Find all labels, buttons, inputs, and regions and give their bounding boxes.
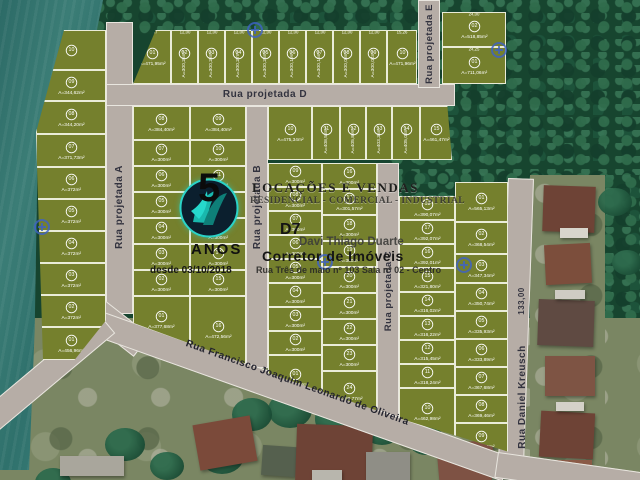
lot-area: A=367,68m² — [468, 386, 494, 391]
watermark-subline: RESIDENCIAL - COMERCIAL - INDUSTRIAL — [250, 196, 465, 206]
lot-number: 16 — [344, 167, 355, 178]
lot: 17A=392,07m² — [399, 220, 455, 244]
lot-number: 02 — [468, 20, 479, 31]
lot-number: 03 — [476, 259, 487, 270]
anniversary-number: 5 — [198, 168, 220, 208]
lot-area: A=384,40m² — [148, 128, 174, 133]
lot: 07A=371,73m² — [36, 134, 106, 167]
lot-dimension: 12,00 — [287, 31, 298, 35]
lot: 09A=384,40m² — [190, 106, 246, 140]
lot-area: A=300m² — [285, 300, 305, 305]
lot: 08A=384,40m² — [133, 106, 190, 140]
tree-canopy — [612, 250, 640, 275]
lot: 12A=315,45m² — [399, 340, 455, 364]
lot-area: A=372m² — [61, 252, 81, 257]
lot: 13,8701A=471,95m² — [133, 30, 171, 84]
street-label-rua-daniel-kreusch: Rua Daniel Kreusch — [514, 337, 530, 457]
lot-number: 22 — [344, 323, 355, 334]
lot-number: 07 — [476, 372, 487, 383]
lot: 12,0006A=300,19m² — [279, 30, 306, 84]
lot-area: A=300m² — [152, 288, 172, 293]
lot-area: A=300m² — [152, 236, 172, 241]
lot: 12,0007A=300,15m² — [306, 30, 333, 84]
house-roof — [60, 456, 124, 476]
lot-area: A=300m² — [285, 348, 305, 353]
lot-number: 01 — [156, 311, 167, 322]
lot-area: A=471,95m² — [139, 62, 165, 67]
lot-number: 05 — [65, 206, 76, 217]
lot-number: 07 — [65, 141, 76, 152]
lot: 02A=372m² — [36, 295, 106, 327]
lot: 12,0009A=300,04m² — [360, 30, 387, 84]
lot-dimension: 12,00 — [206, 31, 217, 35]
lot-dimension: 12,00 — [233, 31, 244, 35]
lot-number: 02 — [289, 334, 300, 345]
lot: 12A=405,89m² — [340, 106, 366, 160]
lot-number: 04 — [65, 238, 76, 249]
lot-number: 08 — [65, 108, 76, 119]
lot-number: 01 — [146, 48, 157, 59]
lot-area: A=300m² — [340, 363, 360, 368]
subdivision-map: 1009A=344,62m²08A=344,20m²07A=371,73m²06… — [0, 0, 640, 480]
lot-area: A=300,27m² — [236, 51, 241, 78]
since-date-label: desde 03/10/2018 — [150, 265, 232, 276]
lot-number: 09 — [289, 166, 300, 177]
lot-area: A=335,93m² — [468, 330, 494, 335]
lot-number: 04 — [476, 288, 487, 299]
lot-number: 10 — [212, 144, 223, 155]
lot-area: A=300,04m² — [371, 51, 376, 78]
lot-number: 10 — [284, 124, 295, 135]
lot-area: A=384,40m² — [205, 128, 231, 133]
survey-marker-icon — [34, 219, 50, 235]
house-roof — [545, 356, 595, 396]
lot: 13A=403,36m² — [366, 106, 392, 160]
street-label-rua-projetada-a: Rua projetada A — [111, 147, 127, 267]
lot-number: 04 — [156, 222, 167, 233]
lot-number: 16 — [212, 321, 223, 332]
block-bc-top-row: 10A=475,34m²11A=408,53m²12A=405,89m²13A=… — [268, 106, 452, 160]
lot-area: A=316,22m² — [414, 333, 440, 338]
lot-area: A=371,73m² — [58, 155, 84, 160]
house-roof — [544, 243, 592, 285]
lot-number: 08 — [156, 114, 167, 125]
lot-number: 03 — [156, 248, 167, 259]
lot-number: 05 — [156, 196, 167, 207]
lot: 11A=408,53m² — [312, 106, 340, 160]
lot-number: 08 — [476, 400, 487, 411]
lot: 07A=367,68m² — [455, 367, 508, 395]
lot-dimension: 12,00 — [314, 31, 325, 35]
lot-dimension: 12,00 — [179, 31, 190, 35]
lot-area: A=471,96m² — [389, 62, 415, 67]
lot: 05A=335,93m² — [455, 311, 508, 339]
lot: 03A=372m² — [36, 263, 106, 295]
lot-number: 01 — [65, 334, 76, 345]
lot-area: A=392,07m² — [414, 237, 440, 242]
lot-area: A=300m² — [340, 311, 360, 316]
lot-number: 10 — [396, 48, 407, 59]
lot-area: A=318,24m² — [414, 381, 440, 386]
lot-area: A=372m² — [61, 284, 81, 289]
lot: 12,0003A=300,28m² — [198, 30, 225, 84]
lot: 11A=318,24m² — [399, 364, 455, 388]
lot: 02A=368,54m² — [455, 222, 508, 254]
lot-number: 13 — [421, 319, 432, 330]
lot: 21A=300m² — [322, 293, 377, 319]
lot: 04A=350,74m² — [455, 283, 508, 311]
lot-area: A=347,34m² — [468, 273, 494, 278]
agency-address: Rua Três de maio nº 103 Sala nº 02 - Cen… — [256, 265, 441, 275]
lot-area: A=300m² — [152, 210, 172, 215]
lot: 06A=333,89m² — [455, 339, 508, 367]
house-roof — [560, 228, 588, 238]
lot-area: A=300,19m² — [290, 51, 295, 78]
lot: 15A=461,47m² — [420, 106, 452, 160]
lot: 04A=372m² — [36, 231, 106, 263]
lot: 10A=475,34m² — [268, 106, 312, 160]
survey-marker-icon — [456, 257, 472, 273]
lot: 04A=300m² — [268, 283, 322, 307]
tree-canopy — [598, 188, 632, 216]
lot-number: 21 — [344, 297, 355, 308]
lot-area: A=344,62m² — [58, 90, 84, 95]
lot-area: A=369,46m² — [468, 414, 494, 419]
agent-name: Davi Thiago Duarte — [299, 236, 404, 248]
lot-area: A=372m² — [61, 316, 81, 321]
lot-area: A=405,03m² — [404, 127, 409, 154]
lot-area: A=316,02m² — [414, 309, 440, 314]
lot-dimension: 15,26 — [397, 31, 408, 35]
lot-area: A=475,34m² — [277, 138, 303, 143]
lot-number: 16 — [421, 247, 432, 258]
lot-number: 12 — [421, 343, 432, 354]
lot-number: 10 — [421, 403, 432, 414]
lot-area: A=300,26m² — [182, 51, 187, 78]
lot-area: A=408,53m² — [324, 127, 329, 154]
lot-area: A=333,89m² — [468, 358, 494, 363]
lot: 12,0008A=300,08m² — [333, 30, 360, 84]
street-dimension-133: 133,00 — [513, 279, 529, 323]
lot-dimension: 12,00 — [368, 31, 379, 35]
lot-dimension: 24,00 — [469, 13, 480, 17]
lot-number: 09 — [65, 76, 76, 87]
lot-area: A=518,85m² — [461, 34, 487, 39]
lot-area: A=711,06m² — [461, 70, 487, 75]
lot-area: A=315,45m² — [414, 357, 440, 362]
lot-number: 06 — [476, 344, 487, 355]
lot: 14A=405,03m² — [392, 106, 420, 160]
lot-area: A=350,74m² — [468, 302, 494, 307]
lot: 13A=316,22m² — [399, 316, 455, 340]
lot-number: 14 — [421, 295, 432, 306]
lot-number: 03 — [65, 270, 76, 281]
lot-area: A=321,80m² — [414, 285, 440, 290]
house-roof — [539, 411, 595, 460]
lot: 12,0002A=300,26m² — [171, 30, 198, 84]
lot: 12,0004A=300,27m² — [225, 30, 252, 84]
lot-area: A=405,89m² — [351, 127, 356, 154]
lot-area: A=368,54m² — [468, 243, 494, 248]
lot: 03A=300m² — [268, 307, 322, 331]
lot: 12,0005A=300,25m² — [252, 30, 279, 84]
house-roof — [555, 290, 585, 299]
lot-number: 01 — [476, 193, 487, 204]
lot: 06A=372m² — [36, 167, 106, 199]
house-roof — [312, 470, 342, 480]
lot-area: A=300m² — [152, 158, 172, 163]
lot-number: 03 — [289, 310, 300, 321]
lot-dimension: 12,00 — [341, 31, 352, 35]
lot-number: 06 — [156, 170, 167, 181]
lot-number: 15 — [430, 124, 441, 135]
lot-area: A=300,08m² — [344, 51, 349, 78]
lot-area: A=472,56m² — [205, 335, 231, 340]
lot: 10A=300m² — [190, 140, 246, 166]
lot: 14A=316,02m² — [399, 292, 455, 316]
lot-number: 02 — [476, 229, 487, 240]
lot-area: A=390,07m² — [414, 213, 440, 218]
survey-marker-icon — [247, 22, 263, 38]
house-roof — [556, 402, 584, 411]
lot-area: A=344,20m² — [58, 122, 84, 127]
lot-area: A=461,47m² — [423, 138, 449, 143]
house-roof — [542, 185, 596, 233]
house-roof — [537, 299, 595, 347]
lot-number: 01 — [468, 56, 479, 67]
lot-dimension: 24,25 — [469, 48, 480, 52]
lot-area: A=300m² — [208, 158, 228, 163]
lot-area: A=565,13m² — [468, 207, 494, 212]
block-north-of-rua-d: 13,8701A=471,95m²12,0002A=300,26m²12,000… — [133, 30, 417, 84]
lot-number: 09 — [476, 431, 487, 442]
lot: 15,2610A=471,96m² — [387, 30, 417, 84]
tree-canopy — [150, 452, 184, 480]
street-label-rua-projetada-d: Rua projetada D — [210, 86, 320, 102]
lot-area: A=300m² — [285, 324, 305, 329]
watermark-headline: LOCAÇÕES E VENDAS — [252, 180, 419, 196]
lot: 08A=369,46m² — [455, 395, 508, 423]
lot: 02A=300m² — [268, 331, 322, 355]
lot-area: A=300m² — [152, 184, 172, 189]
lot-number: 05 — [476, 316, 487, 327]
lot-area: A=300m² — [340, 285, 360, 290]
lot-number: 02 — [65, 302, 76, 313]
lot-area: A=300,28m² — [209, 51, 214, 78]
lot-area: A=301,57m² — [336, 207, 362, 212]
lot-number: 07 — [156, 144, 167, 155]
lot: 22A=300m² — [322, 319, 377, 345]
anos-label: ANOS — [191, 241, 242, 258]
lot: 07A=300m² — [133, 140, 190, 166]
lot-number: 18 — [344, 219, 355, 230]
house-roof — [366, 452, 410, 480]
lot-number: 17 — [421, 223, 432, 234]
lot-area: A=300m² — [208, 288, 228, 293]
lot-number: 04 — [289, 286, 300, 297]
lot-area: A=300m² — [285, 276, 305, 281]
house-roof — [261, 445, 297, 477]
lot-area: A=403,36m² — [377, 127, 382, 154]
lot-area: A=300m² — [340, 337, 360, 342]
lot-area: A=372m² — [61, 220, 81, 225]
lot: 08A=344,20m² — [36, 101, 106, 134]
lot-number: 10 — [65, 44, 76, 55]
lot-number: 11 — [421, 367, 432, 378]
lot: 23A=300m² — [322, 345, 377, 371]
lot-number: 09 — [212, 114, 223, 125]
street-label-rua-projetada-e: Rua projetada E — [421, 2, 437, 86]
lot-area: A=300,25m² — [263, 51, 268, 78]
survey-marker-icon — [491, 42, 507, 58]
agent-role: Corretor de Imóveis — [262, 248, 404, 264]
lot-area: A=456,96m² — [58, 348, 84, 353]
lot-area: A=372m² — [61, 188, 81, 193]
lot-number: 06 — [65, 174, 76, 185]
lot-area: A=300,15m² — [317, 51, 322, 78]
brand-d7: D7 — [280, 221, 300, 239]
lot-number: 23 — [344, 349, 355, 360]
